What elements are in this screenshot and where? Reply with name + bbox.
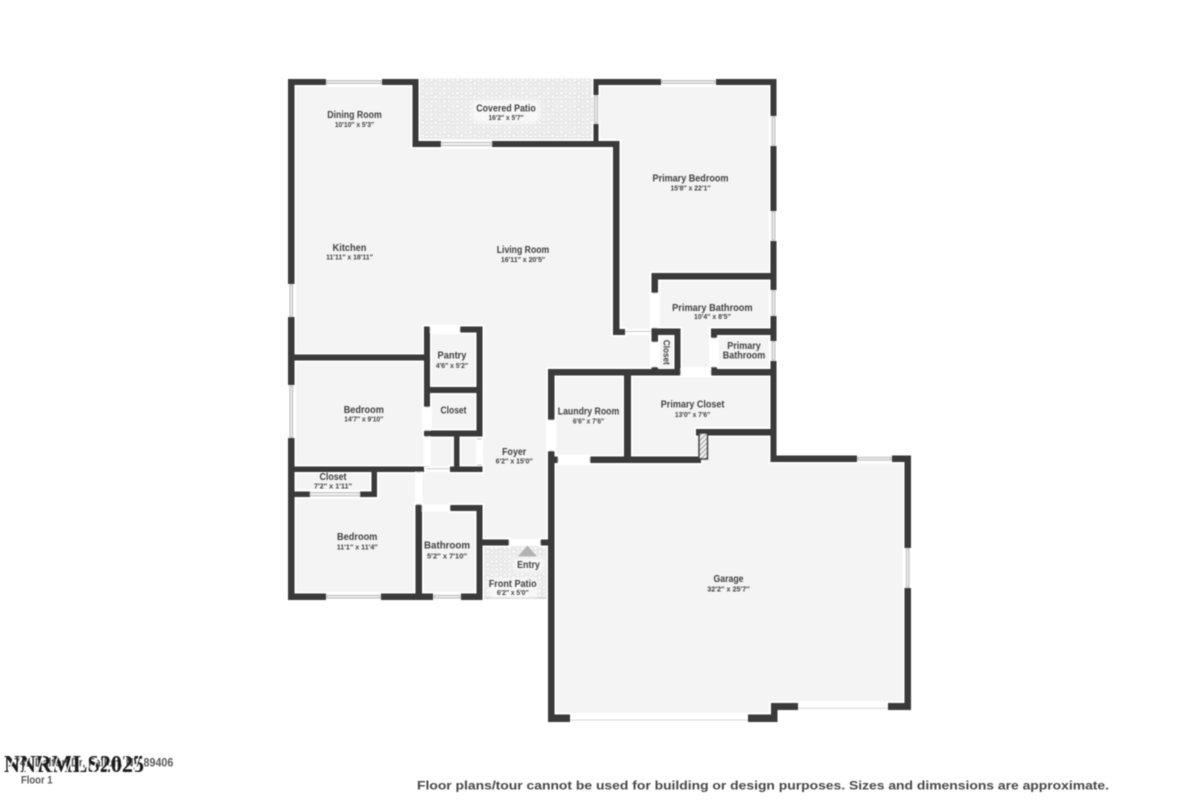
svg-text:13′0″ x 7′6″: 13′0″ x 7′6″ <box>675 410 711 419</box>
svg-text:Closet: Closet <box>441 406 468 417</box>
svg-text:Bathroom: Bathroom <box>723 350 766 361</box>
svg-text:10′4″ x 8′5″: 10′4″ x 8′5″ <box>694 312 731 321</box>
svg-text:4′6″ x 5′2″: 4′6″ x 5′2″ <box>436 361 469 370</box>
svg-text:32′2″ x 25′7″: 32′2″ x 25′7″ <box>707 584 750 593</box>
svg-text:10′10″ x 5′3″: 10′10″ x 5′3″ <box>335 120 375 129</box>
svg-text:Floor 1: Floor 1 <box>21 775 53 787</box>
svg-text:7′2″ x 1′11″: 7′2″ x 1′11″ <box>314 482 352 491</box>
svg-text:Pantry: Pantry <box>438 351 467 362</box>
svg-text:Closet: Closet <box>662 340 672 365</box>
svg-text:Primary Closet: Primary Closet <box>661 400 725 411</box>
svg-text:6′2″ x 5′0″: 6′2″ x 5′0″ <box>497 588 529 597</box>
svg-text:15′8″ x 22′1″: 15′8″ x 22′1″ <box>670 183 711 192</box>
svg-text:Floor plans/tour cannot be use: Floor plans/tour cannot be used for buil… <box>417 779 1109 793</box>
svg-text:Entry: Entry <box>517 560 540 571</box>
svg-text:14′7″ x 9′10″: 14′7″ x 9′10″ <box>344 414 383 423</box>
svg-text:6′2″ x 15′0″: 6′2″ x 15′0″ <box>496 456 534 465</box>
svg-text:16′11″ x 20′5″: 16′11″ x 20′5″ <box>501 255 546 264</box>
svg-text:Bathroom: Bathroom <box>424 541 470 552</box>
svg-text:16′2″ x 5′7″: 16′2″ x 5′7″ <box>489 113 524 122</box>
svg-text:5′2″ x 7′10″: 5′2″ x 7′10″ <box>427 552 467 561</box>
svg-text:11′1″ x 11′4″: 11′1″ x 11′4″ <box>337 543 378 552</box>
svg-text:11′11″ x 18′11″: 11′11″ x 18′11″ <box>326 252 373 261</box>
svg-text:Bedroom: Bedroom <box>337 532 378 543</box>
svg-text:6′6″ x 7′6″: 6′6″ x 7′6″ <box>573 416 605 425</box>
